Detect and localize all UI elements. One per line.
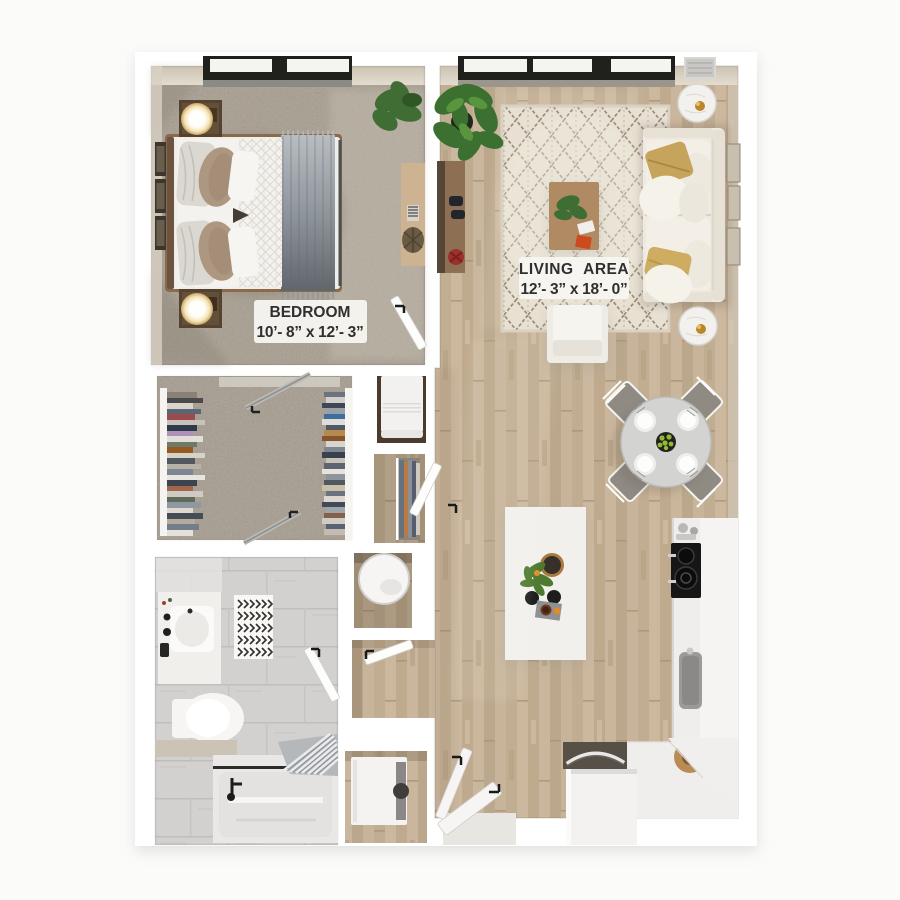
- svg-text:12’- 3” x 18’- 0”: 12’- 3” x 18’- 0”: [521, 281, 628, 298]
- svg-text:10’- 8” x 12’- 3”: 10’- 8” x 12’- 3”: [257, 324, 364, 341]
- svg-text:BEDROOM: BEDROOM: [270, 304, 351, 321]
- svg-text:LIVING AREA: LIVING AREA: [519, 261, 629, 278]
